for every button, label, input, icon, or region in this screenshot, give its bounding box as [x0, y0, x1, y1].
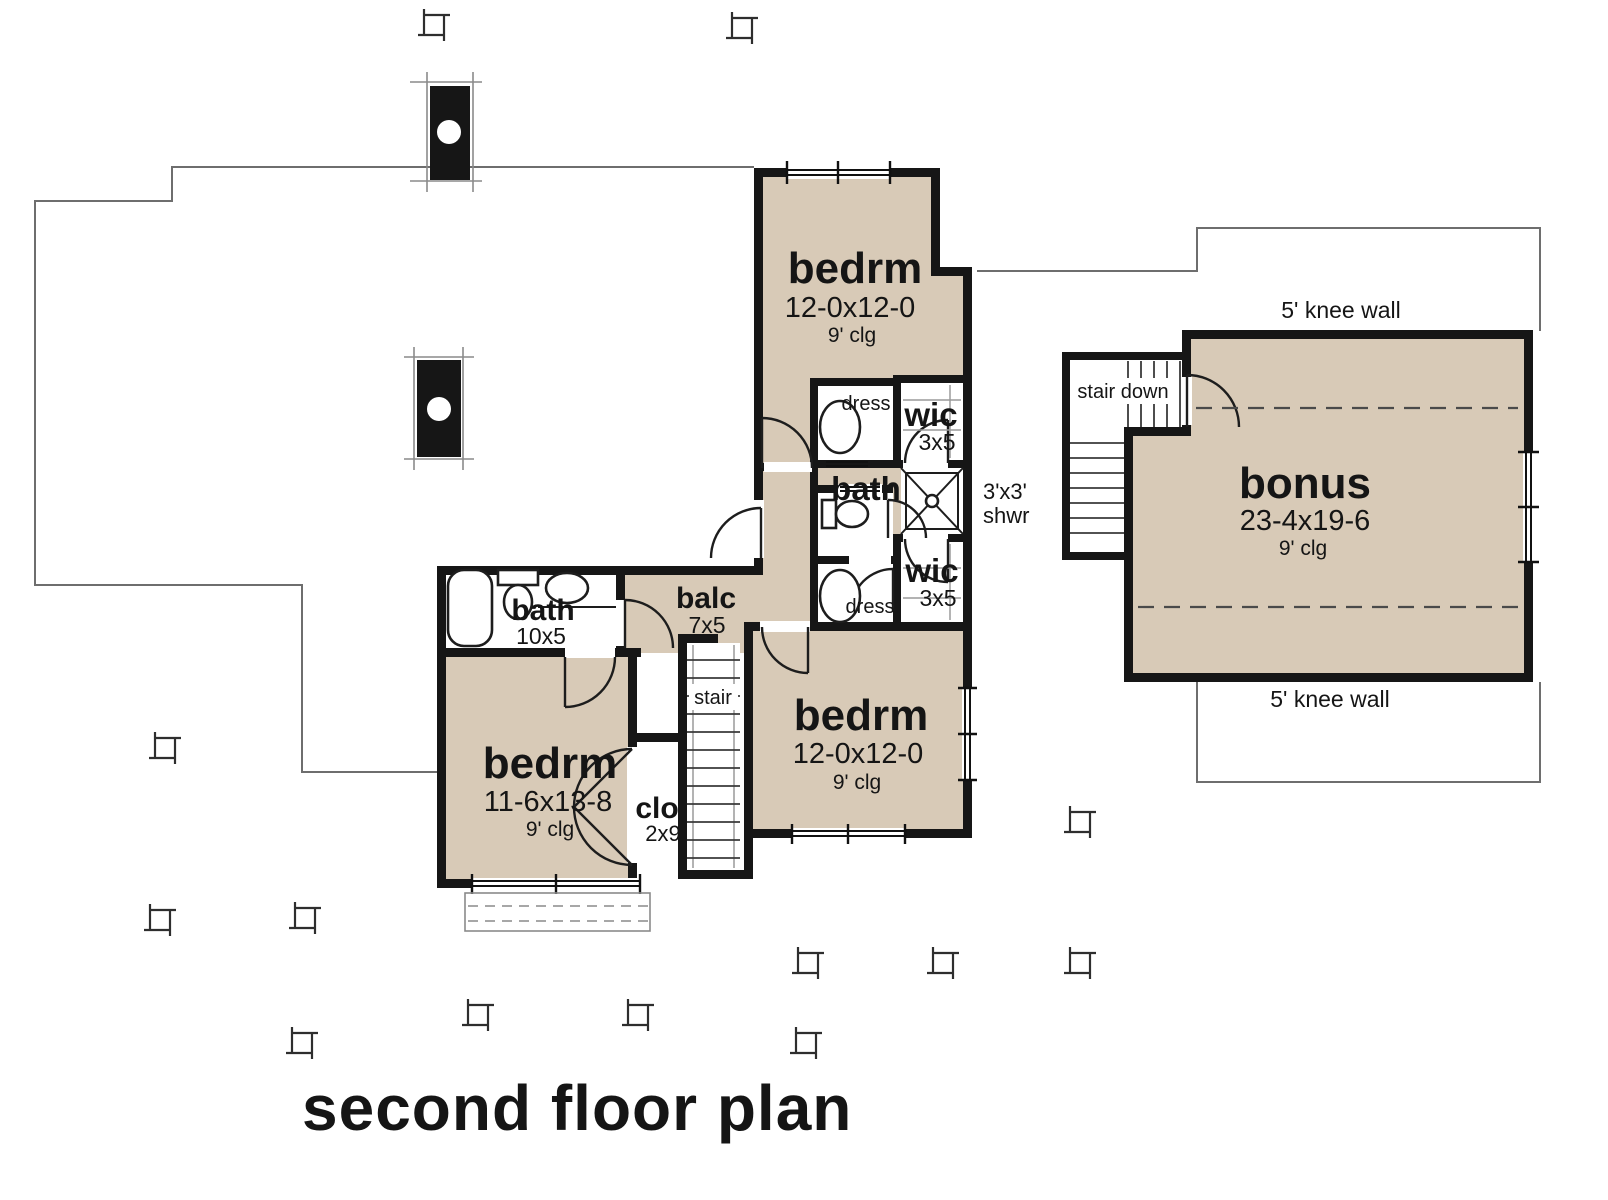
label-dress-upper: dress — [842, 393, 891, 415]
bay-window-outline — [465, 893, 650, 931]
label-shower-size: 3'x3' — [983, 479, 1027, 504]
label-balcony-dims: 7x5 — [688, 612, 725, 638]
chimney-flue-top — [410, 72, 482, 192]
label-closet-dims: 2x9 — [645, 821, 680, 846]
label-dress-lower: dress — [846, 596, 895, 618]
label-knee-wall-bottom: 5' knee wall — [1270, 686, 1389, 712]
floor-plan-drawing: bedrm 12-0x12-0 9' clg bedrm 12-0x12-0 9… — [0, 0, 1608, 1200]
label-bedroom-upper-ceiling: 9' clg — [828, 324, 876, 347]
floor-plan-page: bedrm 12-0x12-0 9' clg bedrm 12-0x12-0 9… — [0, 0, 1608, 1200]
label-bonus-ceiling: 9' clg — [1279, 537, 1327, 560]
label-bedroom-right-name: bedrm — [794, 691, 928, 740]
label-bath-left-dims: 10x5 — [516, 623, 566, 649]
label-bedroom-left-ceiling: 9' clg — [526, 818, 574, 841]
label-bedroom-left-name: bedrm — [483, 739, 617, 788]
label-bedroom-right-dims: 12-0x12-0 — [793, 738, 924, 770]
label-bonus-dims: 23-4x19-6 — [1240, 505, 1371, 537]
label-balcony-name: balc — [676, 582, 736, 615]
label-bath-hall: bath — [831, 470, 901, 507]
chimney-flue-middle — [404, 347, 474, 470]
label-bedroom-right-ceiling: 9' clg — [833, 771, 881, 794]
label-bedroom-upper-dims: 12-0x12-0 — [785, 292, 916, 324]
bathtub — [448, 570, 492, 646]
label-wic-lower-name: wic — [904, 552, 958, 589]
label-shower-name: shwr — [983, 503, 1029, 528]
label-bonus-name: bonus — [1239, 459, 1371, 508]
label-stair: stair — [694, 687, 732, 709]
page-title: second floor plan — [302, 1072, 852, 1144]
label-bedroom-left-dims: 11-6x13-8 — [484, 786, 612, 818]
label-wic-upper-dims: 3x5 — [918, 429, 955, 455]
label-stair-down: stair down — [1077, 381, 1168, 403]
label-bedroom-upper-name: bedrm — [788, 244, 922, 293]
label-knee-wall-top: 5' knee wall — [1281, 297, 1400, 323]
label-wic-upper-name: wic — [903, 396, 957, 433]
label-wic-lower-dims: 3x5 — [919, 585, 956, 611]
